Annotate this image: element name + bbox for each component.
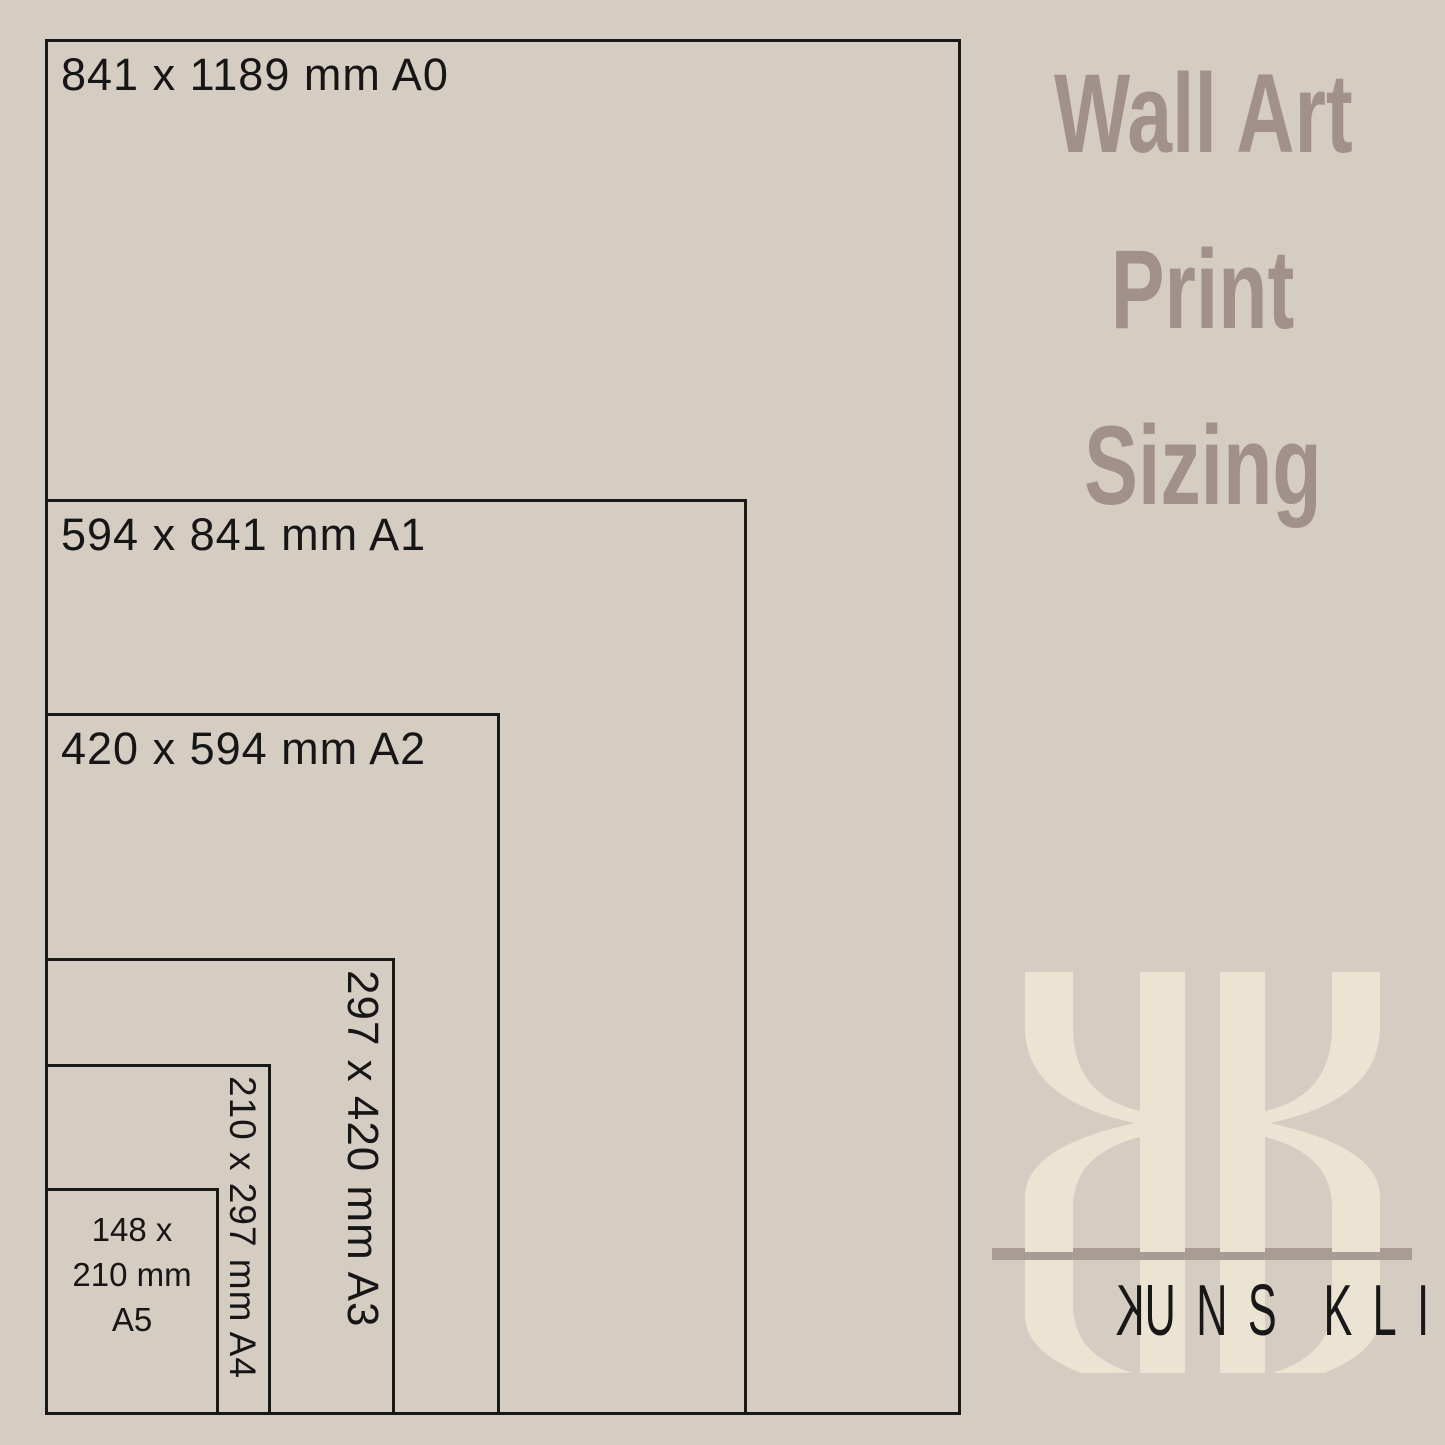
size-label-a1: 594 x 841 mm A1 <box>61 509 426 561</box>
size-label-a0: 841 x 1189 mm A0 <box>61 49 449 101</box>
page-title: Wall Art Print Sizing <box>961 26 1445 554</box>
word2: KLIK <box>1323 1271 1445 1351</box>
title-line-2: Print <box>1111 202 1295 378</box>
mirrored-k-letter: K <box>1095 1270 1144 1352</box>
brand-wordmark: KUNSKLIK <box>961 1270 1445 1352</box>
size-label-a5: 148 x 210 mm A5 <box>48 1207 216 1342</box>
word1-rest: UNS <box>1145 1271 1297 1351</box>
size-label-a4: 210 x 297 mm A4 <box>221 1076 263 1379</box>
size-box-a5: 148 x 210 mm A5 <box>45 1188 219 1415</box>
kk-monogram <box>1025 972 1380 1252</box>
title-line-3: Sizing <box>1084 378 1321 554</box>
size-label-a3: 297 x 420 mm A3 <box>337 970 387 1327</box>
size-label-a5-line1: 148 x <box>48 1207 216 1252</box>
size-label-a5-line3: A5 <box>48 1297 216 1342</box>
kk-monogram-svg <box>1025 972 1380 1252</box>
size-label-a5-line2: 210 mm <box>48 1252 216 1297</box>
title-line-1: Wall Art <box>1054 26 1353 202</box>
wall-art-print-sizing-infographic: 841 x 1189 mm A0 594 x 841 mm A1 420 x 5… <box>0 0 1445 1445</box>
size-label-a2: 420 x 594 mm A2 <box>61 723 426 775</box>
brand-wordmark-text: KUNSKLIK <box>1095 1270 1445 1352</box>
